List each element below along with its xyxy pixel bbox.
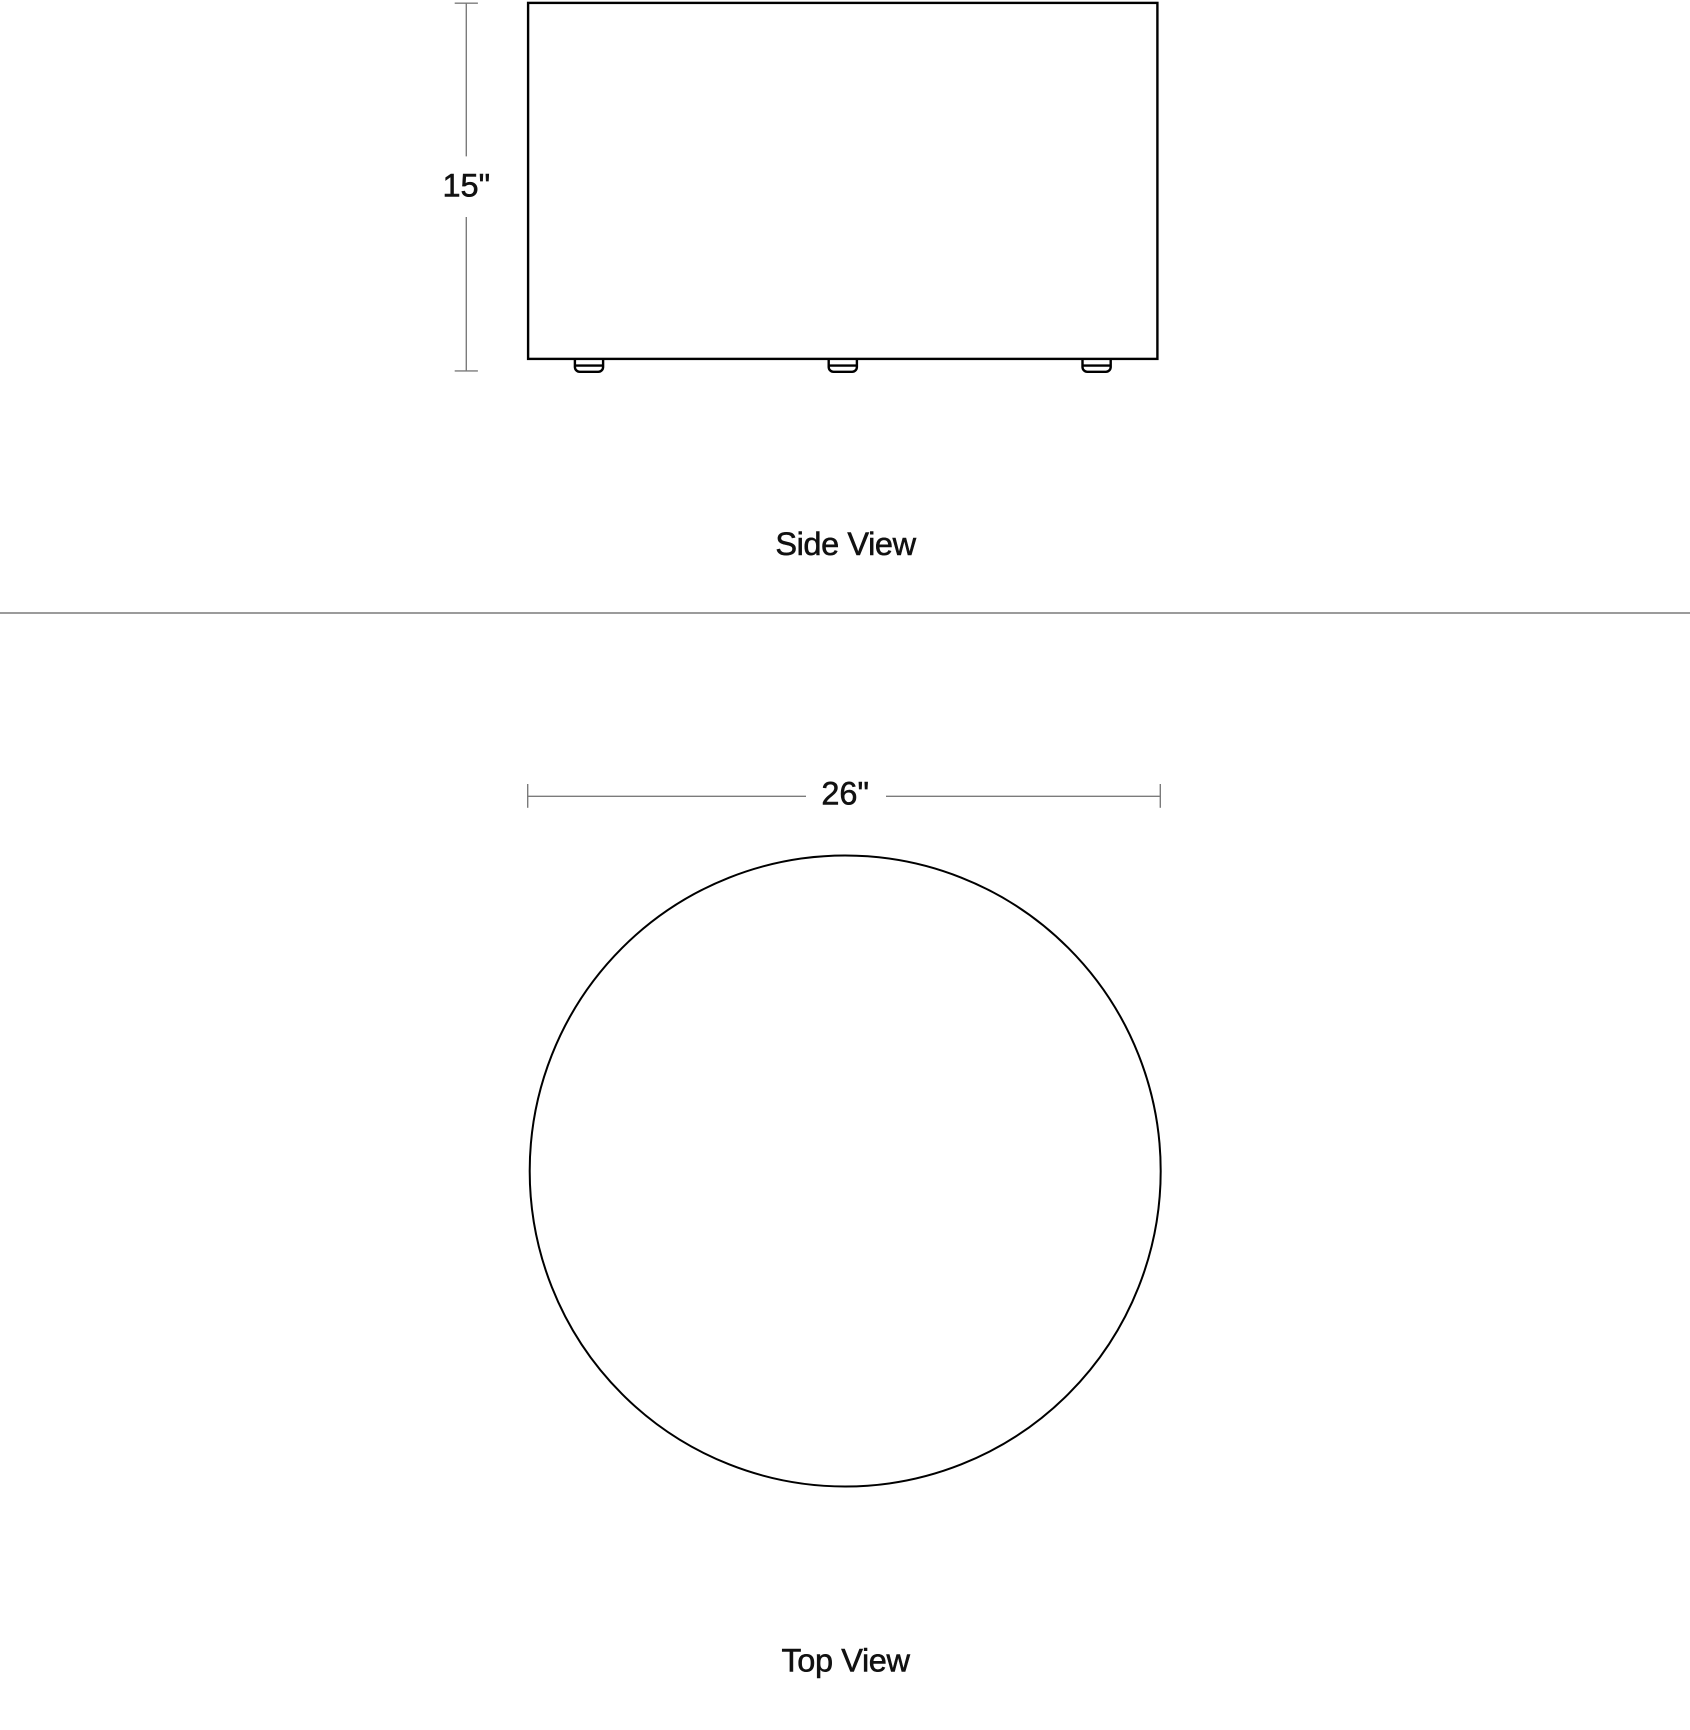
svg-text:15": 15" (442, 168, 490, 204)
svg-text:26": 26" (821, 776, 869, 812)
svg-text:Top View: Top View (781, 1643, 910, 1679)
svg-text:Side View: Side View (775, 526, 916, 562)
